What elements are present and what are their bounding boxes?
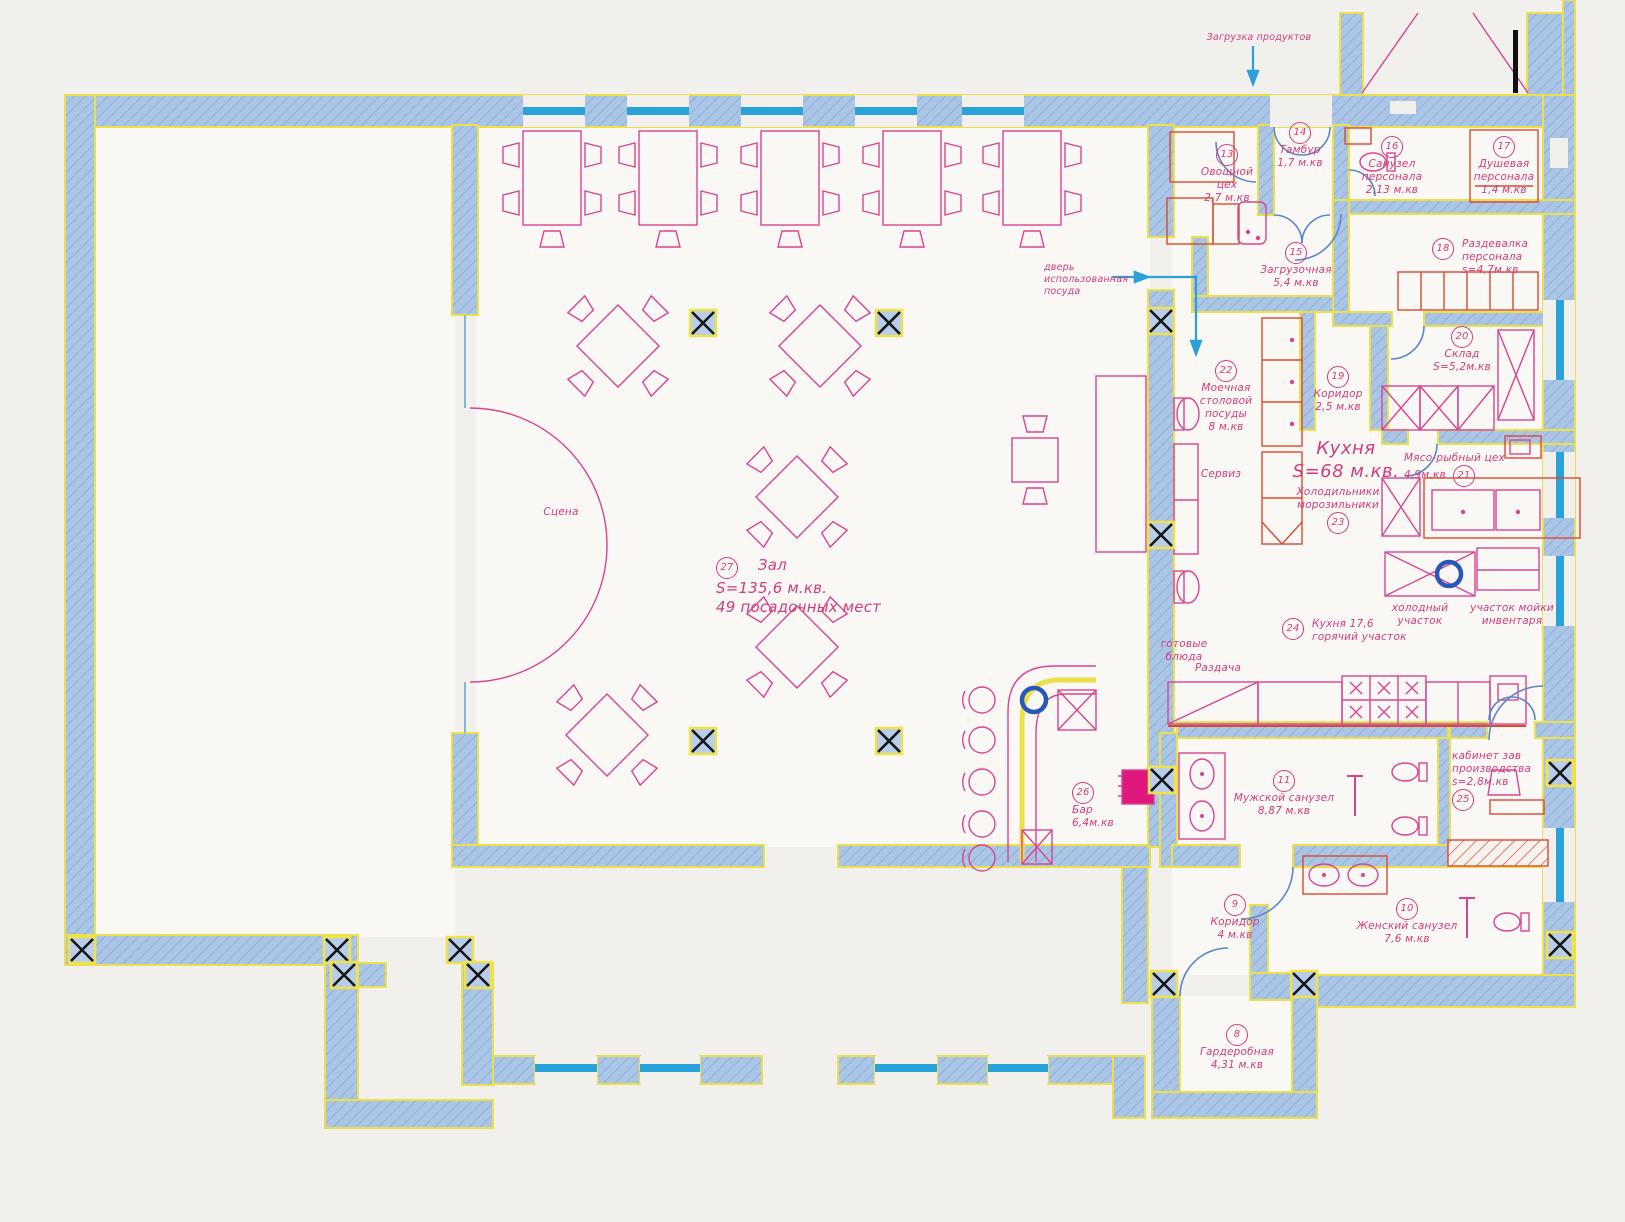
room-number-badge: 11 bbox=[1273, 770, 1295, 792]
room-label-17: 17 Душеваяперсонала1,4 м.кв bbox=[1460, 136, 1548, 197]
room-number-badge: 23 bbox=[1327, 512, 1349, 534]
room-label-27: 27 Зал S=135,6 м.кв. 49 посадочных мест bbox=[716, 556, 926, 617]
room-number-badge: 19 bbox=[1327, 366, 1349, 388]
loading-ramp bbox=[1362, 13, 1528, 93]
room-number-badge: 9 bbox=[1224, 894, 1246, 916]
room-label-10: 10 Женский санузел7,6 м.кв bbox=[1348, 898, 1466, 946]
hatched-zone bbox=[1448, 840, 1548, 866]
room-number-badge: 10 bbox=[1396, 898, 1418, 920]
room-number-badge: 18 bbox=[1432, 238, 1454, 260]
room-label-24: 24 Кухня 17,6горячий участок bbox=[1282, 618, 1407, 644]
room-label-15: 15 Загрузочная5,4 м.кв bbox=[1252, 242, 1340, 290]
room-label-19: 19 Коридор2,5 м.кв bbox=[1298, 366, 1378, 414]
zone-label-serve: Раздача bbox=[1186, 662, 1250, 675]
room-number-badge: 25 bbox=[1452, 789, 1474, 811]
room-number-badge: 21 bbox=[1453, 465, 1475, 487]
floor-plan-canvas: Загрузка продуктов дверь использованная … bbox=[0, 0, 1625, 1222]
room-label-26: 26 Бар6,4м.кв bbox=[1072, 782, 1136, 830]
zone-label-service: Сервиз bbox=[1194, 468, 1248, 481]
room-label-23: Холодильникиморозильники 23 bbox=[1288, 486, 1388, 534]
wall-mark bbox=[1513, 30, 1518, 93]
kitchen-title: Кухня S=68 м.кв. bbox=[1276, 438, 1416, 483]
room-number-badge: 13 bbox=[1216, 144, 1238, 166]
room-label-8: 8 Гардеробная4,31 м.кв bbox=[1192, 1024, 1282, 1072]
room-number-badge: 22 bbox=[1215, 360, 1237, 382]
dishes-annotation: дверь использованная посуда bbox=[1044, 262, 1124, 298]
room-number-badge: 26 bbox=[1072, 782, 1094, 804]
room-label-20: 20 СкладS=5,2м.кв bbox=[1420, 326, 1504, 374]
room-number-badge: 16 bbox=[1381, 136, 1403, 158]
room-number-badge: 14 bbox=[1289, 122, 1311, 144]
room-number-badge: 15 bbox=[1285, 242, 1307, 264]
room-label-16: 16 Санузелперсонала2,13 м.кв bbox=[1350, 136, 1434, 197]
loading-annotation: Загрузка продуктов bbox=[1204, 32, 1314, 44]
room-label-14: 14 Тамбур1,7 м.кв bbox=[1258, 122, 1342, 170]
room-number-badge: 8 bbox=[1226, 1024, 1248, 1046]
room-label-18: 18 Раздевалкаперсоналаs=4,7м.кв bbox=[1432, 238, 1528, 277]
room-label-13: 13 Овощнойцех2,7 м.кв bbox=[1188, 144, 1266, 205]
zone-label-ready: готовые блюда bbox=[1142, 638, 1226, 664]
room-label-11: 11 Мужской санузел8,87 м.кв bbox=[1228, 770, 1340, 818]
room-label-9: 9 Коридор4 м.кв bbox=[1202, 894, 1268, 942]
room-number-badge: 27 bbox=[716, 557, 738, 579]
room-number-badge: 17 bbox=[1493, 136, 1515, 158]
zone-label-wash: участок мойкиинвентаря bbox=[1466, 602, 1558, 628]
room-number-badge: 20 bbox=[1451, 326, 1473, 348]
room-label-21: Мясо-рыбный цех 4,9м.кв 21 bbox=[1404, 452, 1534, 487]
zone-label-stage: Сцена bbox=[534, 506, 588, 519]
room-label-22: 22 Моечнаястоловой посуды8 м.кв bbox=[1184, 360, 1268, 435]
room-number-badge: 24 bbox=[1282, 618, 1304, 640]
room-label-25: кабинет завпроизводстваs=2,8м.кв 25 bbox=[1452, 750, 1556, 811]
